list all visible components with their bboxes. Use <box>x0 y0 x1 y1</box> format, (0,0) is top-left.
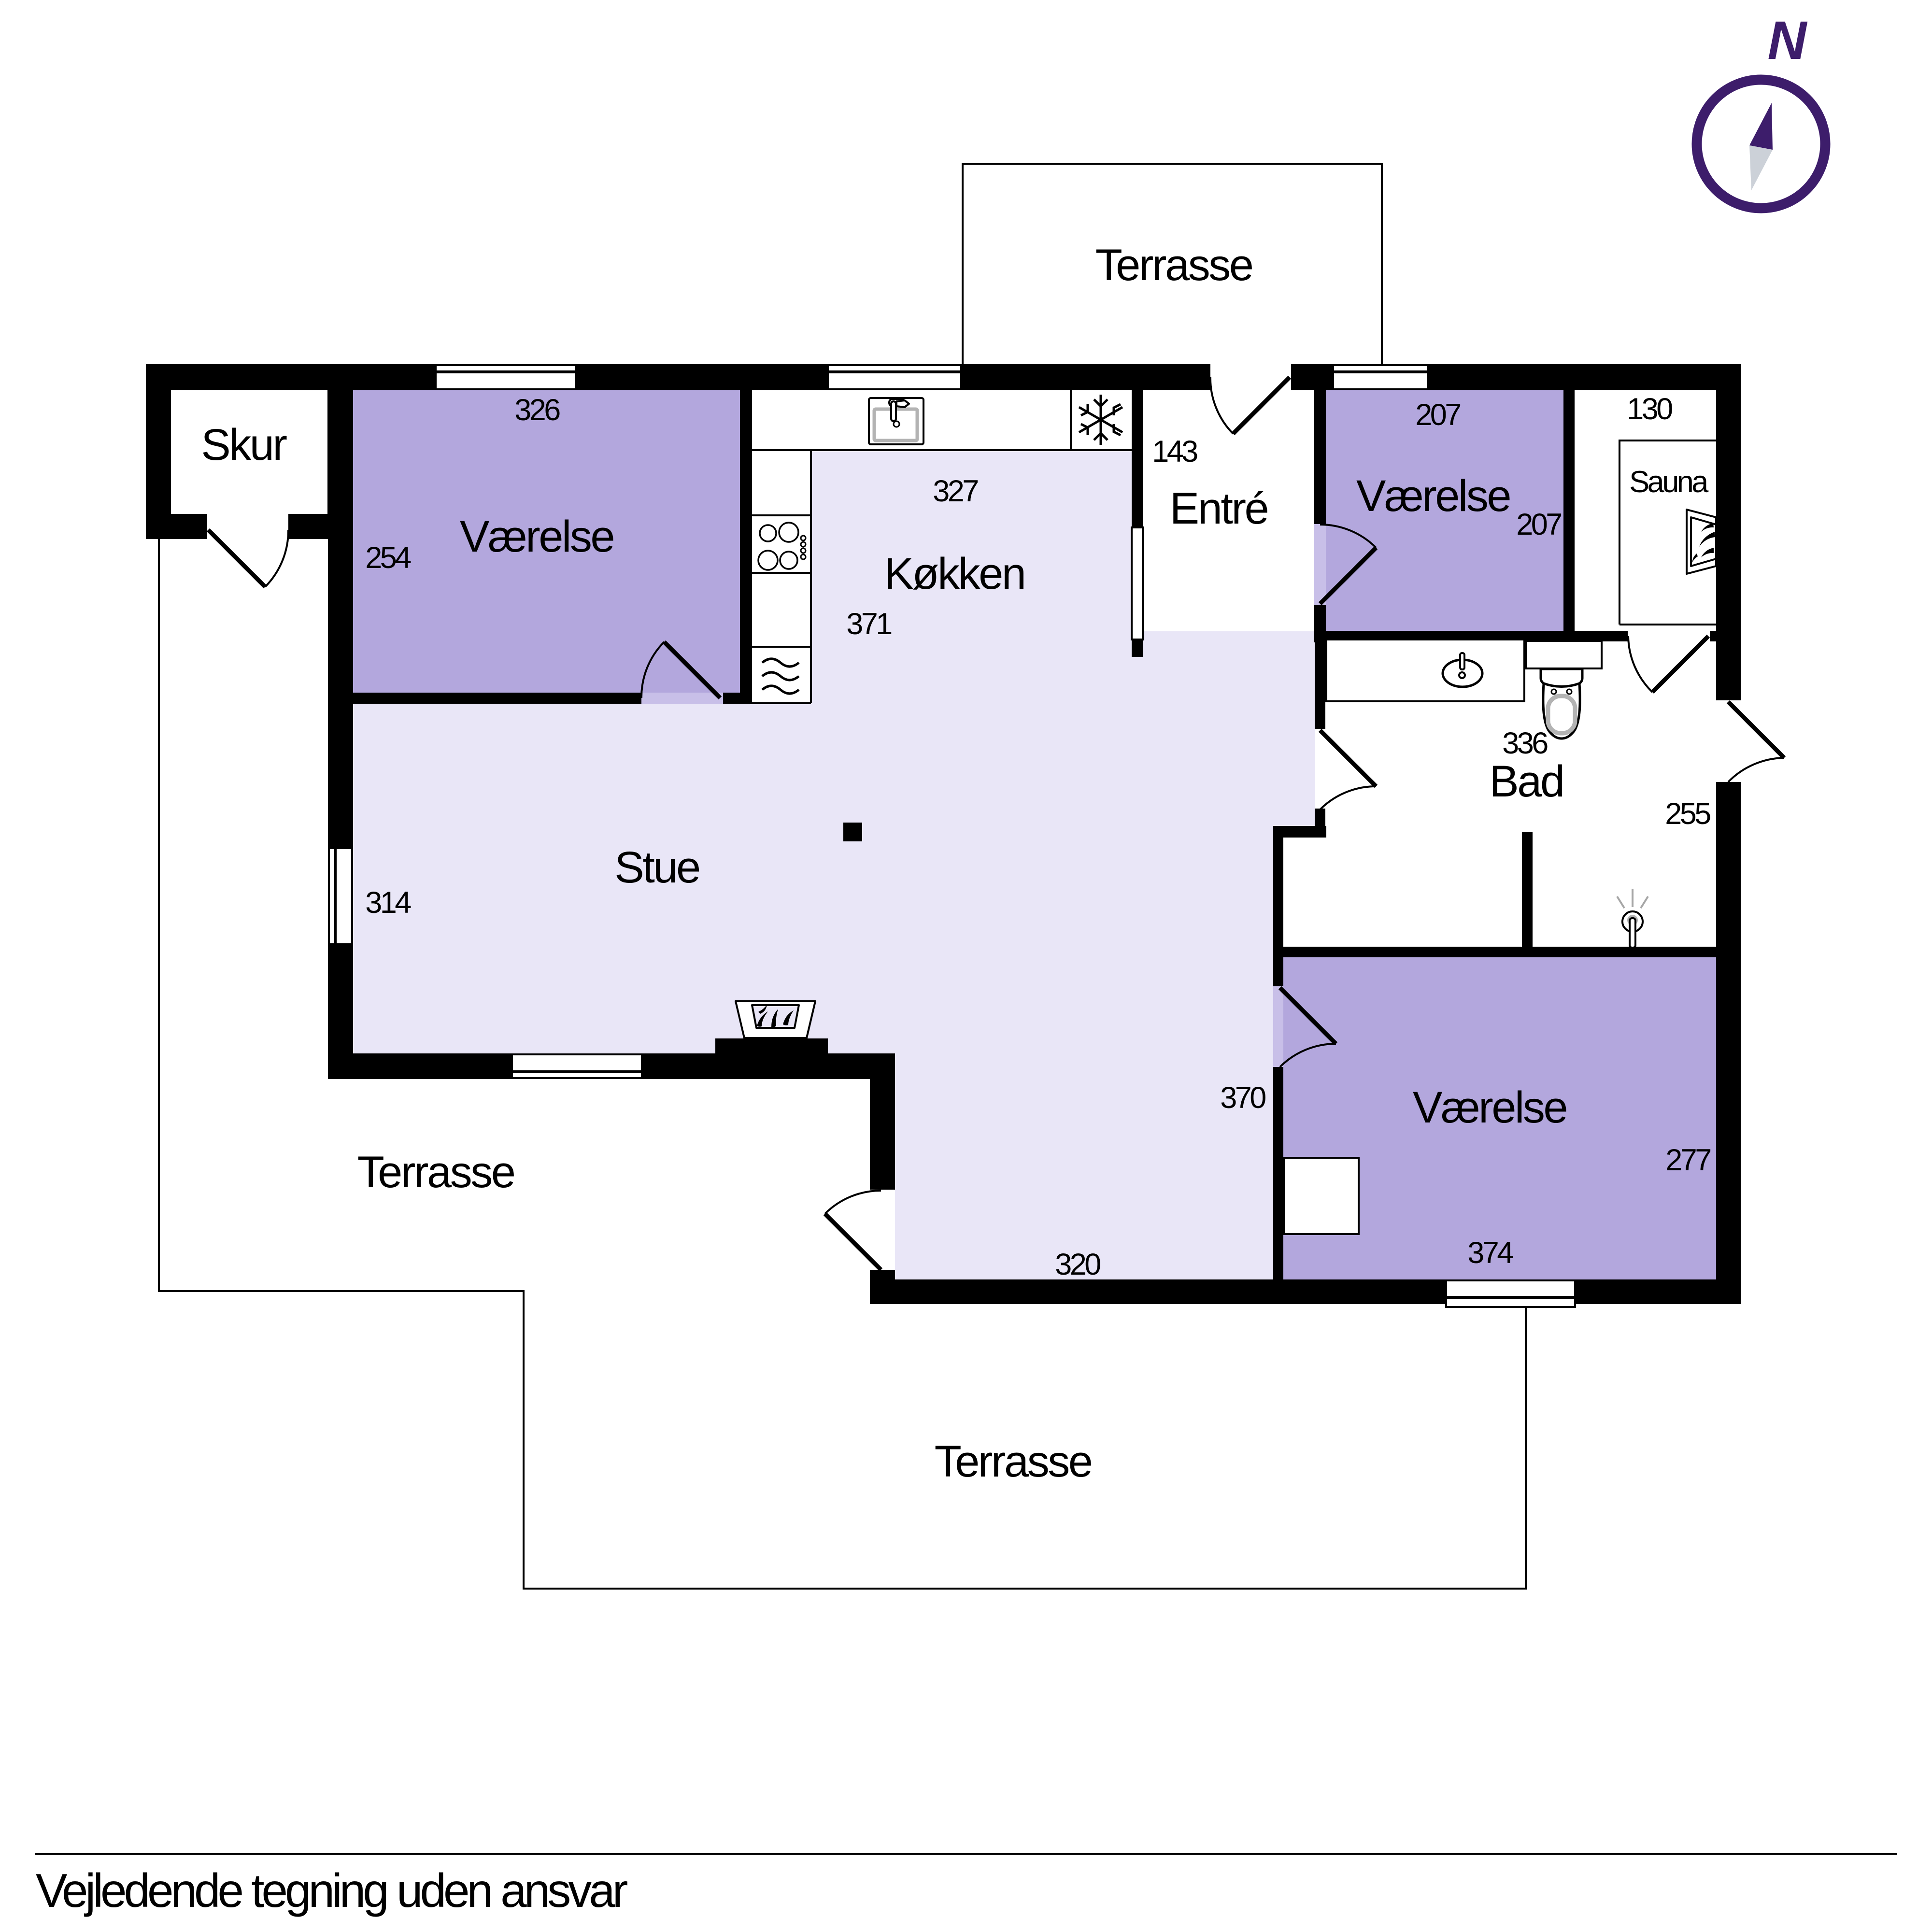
svg-text:254: 254 <box>365 541 411 575</box>
svg-text:N: N <box>1768 10 1808 71</box>
svg-text:Stue: Stue <box>614 843 699 892</box>
svg-text:326: 326 <box>514 393 560 427</box>
svg-text:207: 207 <box>1516 508 1561 541</box>
svg-text:Bad: Bad <box>1489 757 1563 806</box>
svg-text:Sauna: Sauna <box>1629 465 1709 499</box>
svg-text:Værelse: Værelse <box>1356 471 1510 521</box>
svg-text:277: 277 <box>1665 1143 1710 1177</box>
svg-text:143: 143 <box>1152 435 1197 469</box>
svg-text:371: 371 <box>846 607 891 641</box>
svg-text:Værelse: Værelse <box>460 512 613 561</box>
svg-text:370: 370 <box>1220 1081 1265 1115</box>
svg-text:Entré: Entré <box>1170 484 1268 533</box>
svg-text:314: 314 <box>365 886 411 920</box>
svg-text:Vejledende tegning uden ansvar: Vejledende tegning uden ansvar <box>36 1864 628 1917</box>
svg-text:207: 207 <box>1415 398 1460 432</box>
svg-text:Terrasse: Terrasse <box>357 1148 514 1197</box>
svg-text:Køkken: Køkken <box>884 549 1025 598</box>
svg-text:255: 255 <box>1665 797 1710 831</box>
svg-text:336: 336 <box>1502 726 1548 760</box>
svg-text:Terrasse: Terrasse <box>1095 241 1252 290</box>
svg-text:327: 327 <box>933 474 978 508</box>
svg-text:130: 130 <box>1627 392 1672 426</box>
svg-text:Værelse: Værelse <box>1413 1083 1566 1132</box>
svg-text:374: 374 <box>1467 1236 1513 1270</box>
svg-text:320: 320 <box>1055 1248 1100 1281</box>
svg-text:Skur: Skur <box>201 420 287 469</box>
svg-text:Terrasse: Terrasse <box>935 1437 1092 1486</box>
